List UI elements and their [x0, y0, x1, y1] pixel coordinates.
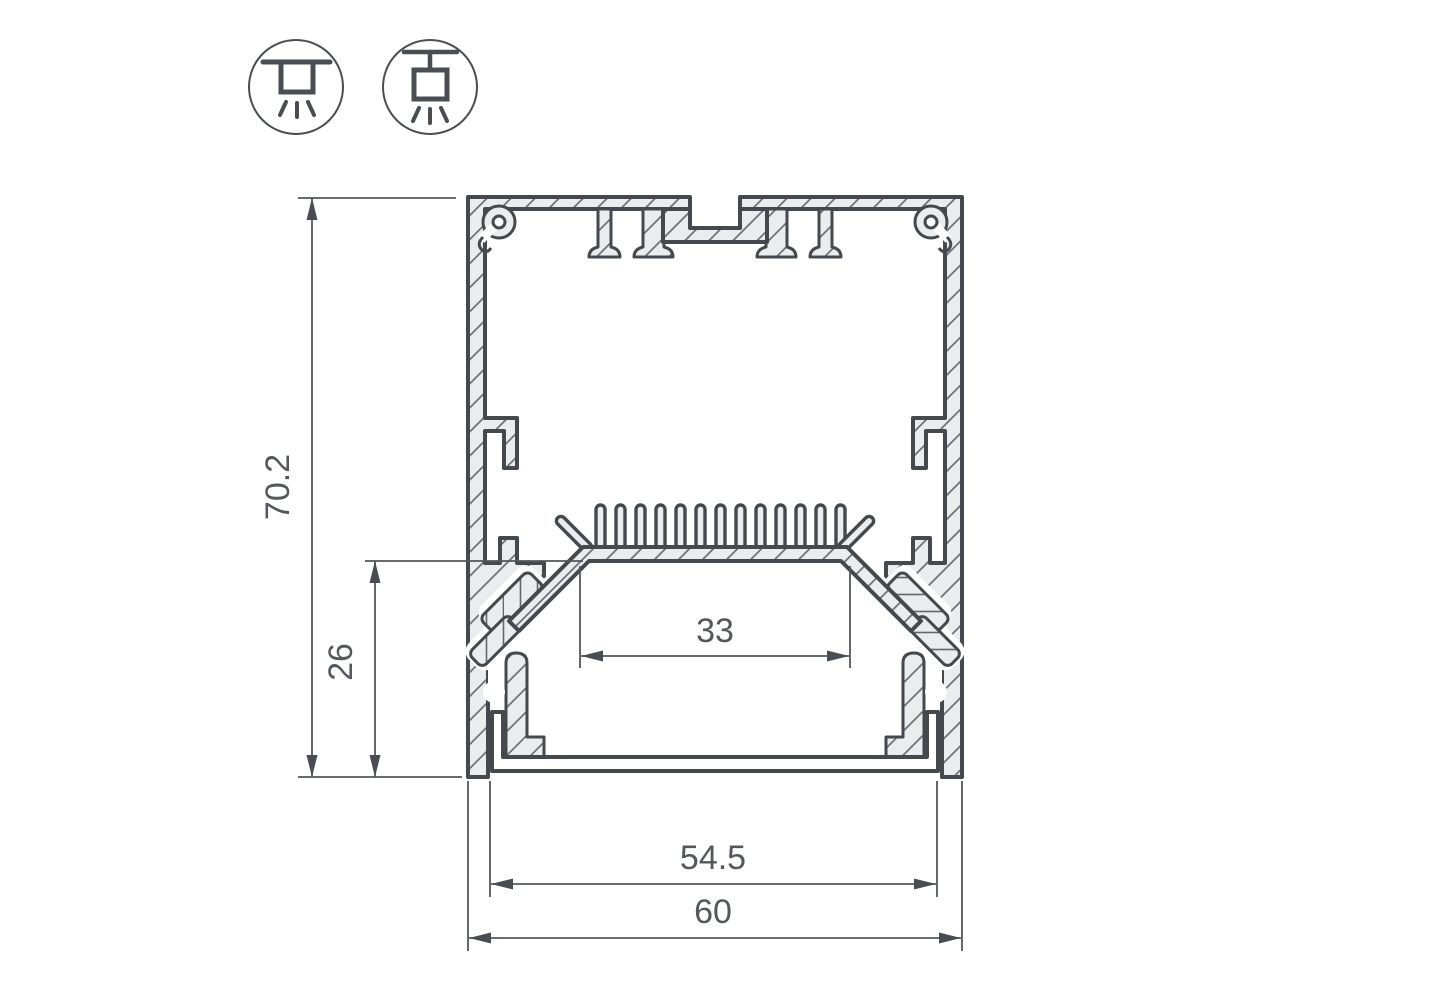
inner-width-label: 54.5 [680, 839, 746, 877]
profile-cross-section-drawing: 70.2 26 33 54.5 60 [0, 0, 1429, 1000]
pendant-mount-icon [383, 40, 477, 134]
dimension-led-platform-width: 33 [580, 566, 850, 668]
t-slot-rib [589, 209, 620, 257]
snap-bar [886, 653, 924, 759]
total-width-label: 60 [694, 893, 732, 931]
profile-right-half [740, 197, 969, 777]
dimension-total-height: 70.2 [259, 198, 462, 777]
diffuser [492, 712, 938, 771]
led-platform-width-label: 33 [696, 612, 734, 650]
profile-left-half [461, 197, 690, 777]
suspension-channel-bridge [663, 209, 767, 242]
luminaire-box [281, 62, 313, 92]
inner-height-label: 26 [322, 643, 360, 681]
light-rays [280, 102, 314, 117]
snap-bar [506, 653, 544, 759]
keyhole-slot [925, 681, 947, 703]
dimension-inner-width: 54.5 [490, 781, 937, 897]
drawing-sheet: 70.2 26 33 54.5 60 [0, 0, 1429, 1000]
luminaire-box [414, 70, 447, 99]
light-rays [413, 108, 447, 123]
total-height-label: 70.2 [259, 454, 297, 520]
surface-mount-icon [249, 40, 343, 134]
t-slot-rib [810, 209, 841, 257]
keyhole-slot [483, 681, 505, 703]
